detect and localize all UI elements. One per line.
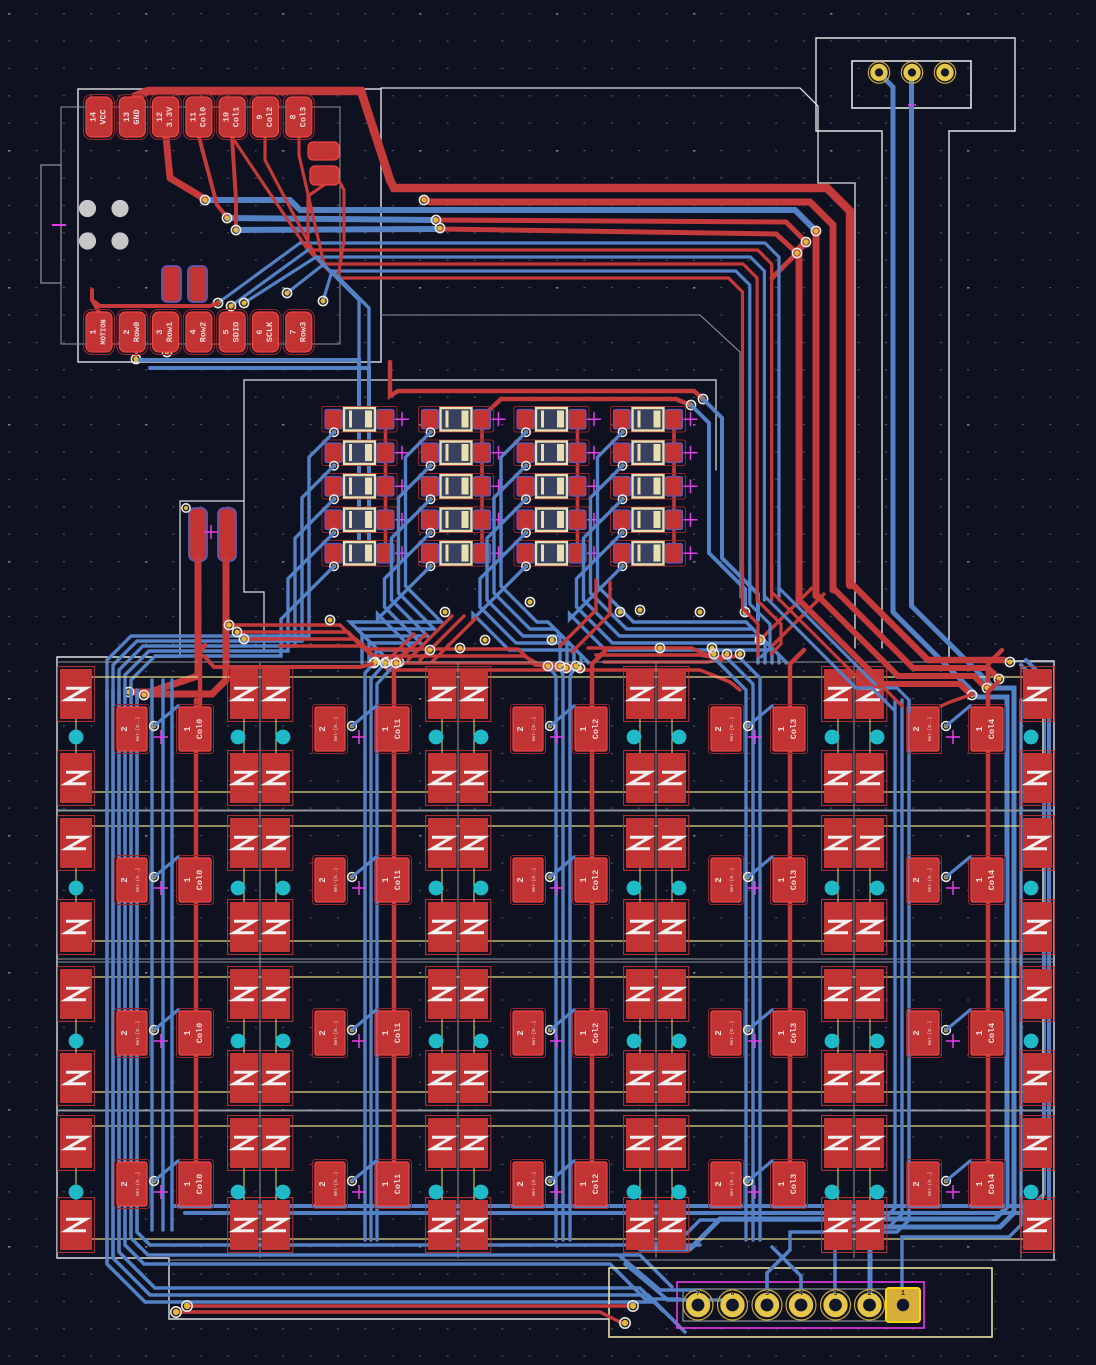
- svg-text:4: 4: [188, 329, 198, 334]
- svg-text:Net-[D..]: Net-[D..]: [729, 1021, 735, 1045]
- svg-text:Net-[D..]: Net-[D..]: [531, 1021, 537, 1045]
- svg-text:Col0: Col0: [195, 1174, 205, 1194]
- svg-text:5: 5: [222, 329, 232, 334]
- svg-text:Net-[D..]: Net-[D..]: [333, 868, 339, 892]
- svg-text:7: 7: [288, 329, 298, 334]
- svg-text:1: 1: [381, 877, 391, 883]
- svg-text:Col3: Col3: [298, 107, 308, 127]
- svg-text:SDIO: SDIO: [232, 322, 242, 342]
- svg-text:Row3: Row3: [298, 322, 308, 342]
- svg-text:1: 1: [975, 877, 985, 883]
- svg-text:Net-[D..]: Net-[D..]: [135, 1172, 141, 1196]
- svg-text:Row0: Row0: [132, 322, 142, 342]
- svg-text:Net-[D..]: Net-[D..]: [531, 868, 537, 892]
- svg-text:Net-[D..]: Net-[D..]: [531, 717, 537, 741]
- svg-text:1: 1: [183, 726, 193, 732]
- svg-text:Net-[D..]: Net-[D..]: [531, 1172, 537, 1196]
- svg-text:Row1: Row1: [165, 322, 175, 342]
- svg-text:Net-[D..]: Net-[D..]: [927, 1172, 933, 1196]
- svg-text:1: 1: [777, 726, 787, 732]
- svg-text:13: 13: [122, 112, 132, 122]
- svg-text:Col3: Col3: [789, 1023, 799, 1043]
- svg-text:Col3: Col3: [789, 719, 799, 739]
- svg-text:Col4: Col4: [987, 719, 997, 739]
- svg-text:Col1: Col1: [232, 107, 242, 127]
- svg-text:7: 7: [696, 1290, 700, 1298]
- svg-text:GND: GND: [132, 109, 142, 124]
- svg-text:9: 9: [255, 114, 265, 119]
- svg-text:2: 2: [912, 877, 922, 882]
- svg-text:2: 2: [714, 1181, 724, 1186]
- svg-text:1: 1: [975, 726, 985, 732]
- svg-text:3.3V: 3.3V: [165, 106, 175, 127]
- svg-text:Col2: Col2: [591, 1023, 601, 1043]
- svg-text:1: 1: [381, 726, 391, 732]
- svg-text:Col4: Col4: [987, 1023, 997, 1043]
- svg-text:2: 2: [318, 877, 328, 882]
- svg-text:Col2: Col2: [591, 719, 601, 739]
- svg-text:1: 1: [777, 1030, 787, 1036]
- svg-text:Net-[D..]: Net-[D..]: [927, 868, 933, 892]
- svg-text:1: 1: [183, 1181, 193, 1187]
- svg-text:Net-[D..]: Net-[D..]: [729, 1172, 735, 1196]
- svg-text:Net-[D..]: Net-[D..]: [333, 1172, 339, 1196]
- svg-text:1: 1: [901, 1290, 905, 1298]
- svg-text:2: 2: [714, 877, 724, 882]
- svg-text:Col1: Col1: [393, 1174, 403, 1194]
- svg-text:2: 2: [714, 1030, 724, 1035]
- svg-text:4: 4: [799, 1290, 803, 1298]
- svg-text:8: 8: [288, 114, 298, 119]
- svg-text:2: 2: [516, 1030, 526, 1035]
- svg-text:1: 1: [975, 1181, 985, 1187]
- svg-text:Col1: Col1: [393, 1023, 403, 1043]
- svg-text:Net-[D..]: Net-[D..]: [927, 1021, 933, 1045]
- svg-text:Net-[D..]: Net-[D..]: [729, 717, 735, 741]
- svg-text:2: 2: [912, 1181, 922, 1186]
- svg-text:1: 1: [777, 877, 787, 883]
- svg-text:Col0: Col0: [195, 1023, 205, 1043]
- svg-text:Col0: Col0: [195, 719, 205, 739]
- svg-text:Net-[D..]: Net-[D..]: [135, 717, 141, 741]
- svg-text:Net-[D..]: Net-[D..]: [927, 717, 933, 741]
- svg-text:1: 1: [975, 1030, 985, 1036]
- svg-text:Col3: Col3: [789, 1174, 799, 1194]
- svg-text:Col1: Col1: [393, 719, 403, 739]
- svg-text:2: 2: [318, 726, 328, 731]
- svg-text:MOTION: MOTION: [101, 319, 109, 344]
- svg-text:1: 1: [777, 1181, 787, 1187]
- svg-text:SCLK: SCLK: [265, 321, 275, 342]
- svg-text:2: 2: [714, 726, 724, 731]
- svg-text:6: 6: [255, 329, 265, 334]
- svg-text:1: 1: [579, 877, 589, 883]
- svg-text:2: 2: [120, 726, 130, 731]
- svg-text:11: 11: [188, 112, 198, 122]
- svg-text:1: 1: [183, 1030, 193, 1036]
- svg-text:2: 2: [912, 726, 922, 731]
- svg-text:1: 1: [89, 329, 99, 334]
- svg-text:1: 1: [381, 1181, 391, 1187]
- svg-text:Net-[D..]: Net-[D..]: [729, 868, 735, 892]
- svg-text:Net-[D..]: Net-[D..]: [333, 717, 339, 741]
- svg-text:2: 2: [318, 1181, 328, 1186]
- svg-text:2: 2: [120, 1030, 130, 1035]
- svg-text:Row2: Row2: [198, 322, 208, 342]
- svg-text:2: 2: [516, 877, 526, 882]
- svg-text:12: 12: [155, 112, 165, 122]
- svg-text:Net-[D..]: Net-[D..]: [333, 1021, 339, 1045]
- svg-text:2: 2: [516, 1181, 526, 1186]
- svg-text:2: 2: [122, 329, 132, 334]
- svg-text:14: 14: [89, 112, 99, 122]
- svg-text:1: 1: [183, 877, 193, 883]
- svg-text:2: 2: [120, 1181, 130, 1186]
- svg-text:Net-[D..]: Net-[D..]: [135, 868, 141, 892]
- svg-text:10: 10: [222, 112, 232, 122]
- svg-text:2: 2: [516, 726, 526, 731]
- svg-text:2: 2: [120, 877, 130, 882]
- svg-text:Col1: Col1: [393, 870, 403, 890]
- svg-text:Col2: Col2: [591, 870, 601, 890]
- svg-text:3: 3: [833, 1290, 837, 1298]
- svg-text:1: 1: [579, 1030, 589, 1036]
- svg-text:Col0: Col0: [195, 870, 205, 890]
- svg-text:3: 3: [155, 329, 165, 334]
- svg-text:Col0: Col0: [198, 107, 208, 127]
- svg-text:2: 2: [912, 1030, 922, 1035]
- svg-text:1: 1: [381, 1030, 391, 1036]
- svg-text:Col4: Col4: [987, 1174, 997, 1194]
- svg-text:Col3: Col3: [789, 870, 799, 890]
- svg-text:Col2: Col2: [265, 107, 275, 127]
- svg-text:5: 5: [765, 1290, 769, 1298]
- svg-text:Col4: Col4: [987, 870, 997, 890]
- svg-text:2: 2: [867, 1290, 871, 1298]
- svg-text:Net-[D..]: Net-[D..]: [135, 1021, 141, 1045]
- svg-text:1: 1: [579, 726, 589, 732]
- svg-text:1: 1: [579, 1181, 589, 1187]
- svg-text:2: 2: [318, 1030, 328, 1035]
- svg-text:6: 6: [730, 1290, 734, 1298]
- svg-text:VCC: VCC: [99, 109, 109, 124]
- svg-text:Col2: Col2: [591, 1174, 601, 1194]
